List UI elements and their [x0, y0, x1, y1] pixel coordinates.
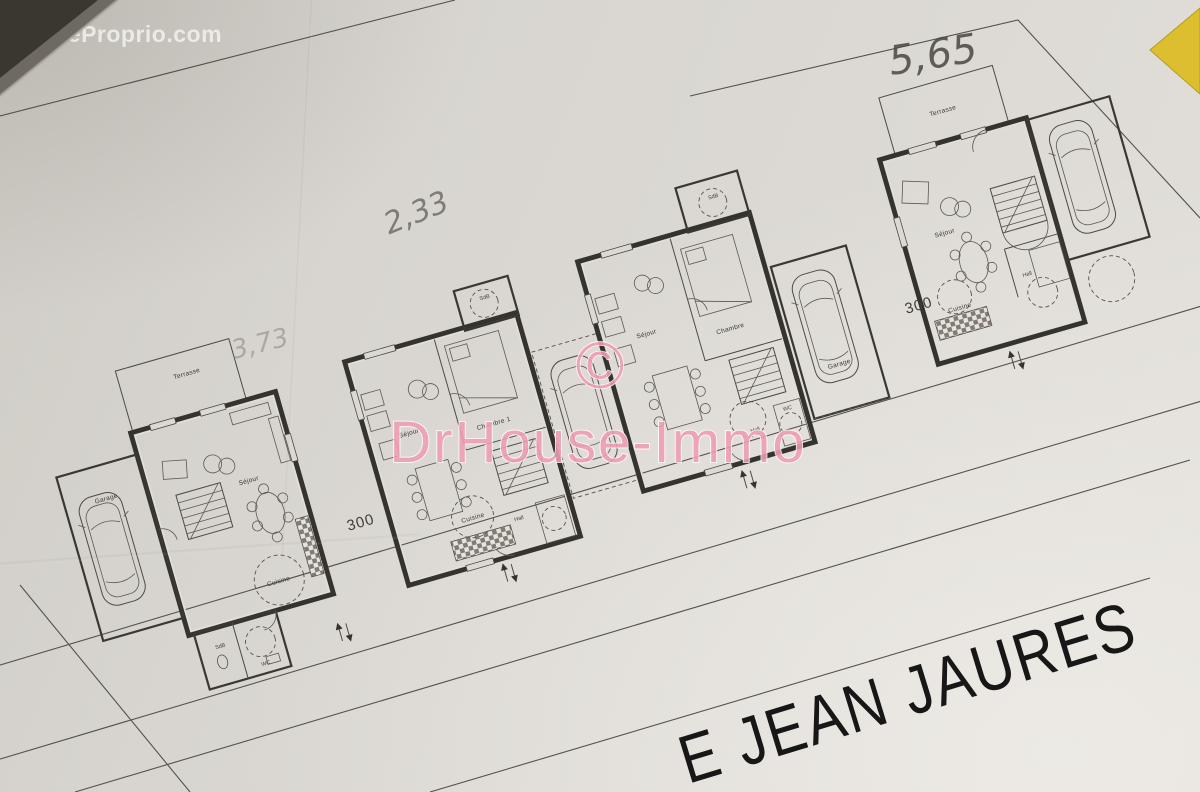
house-2-entry-arrows: [499, 560, 519, 585]
folded-corner-shadow: [0, 0, 118, 96]
house-2-label-hall: Hall: [514, 515, 525, 523]
house-4-furniture: [895, 127, 1140, 351]
house-4-label-hall: Hall: [1022, 271, 1033, 279]
plan-drawing: Terrasse Garage Séjour Cuisine SdB WC: [0, 0, 1200, 792]
house-1-label-sdb: SdB: [215, 642, 227, 651]
agency-watermark-text: DrHouse-Immo: [389, 410, 806, 475]
handwritten-dimension-3-73: 3,73: [228, 323, 291, 366]
house-1-room-labels: Terrasse Garage Séjour Cuisine SdB WC: [67, 359, 312, 700]
house-3-label-sejour: Séjour: [636, 328, 658, 341]
floorplan-photo: Terrasse Garage Séjour Cuisine SdB WC: [0, 0, 1200, 792]
house-3-label-chambre: Chambre: [716, 322, 746, 337]
house-4-label-terrasse: Terrasse: [929, 104, 957, 118]
house-1-plan: Terrasse Garage Séjour Cuisine SdB WC: [33, 328, 357, 714]
house-1-label-terrasse: Terrasse: [173, 367, 201, 381]
house-4-entry-arrows: [1006, 348, 1026, 373]
house-2-label-sdb: SdB: [479, 294, 491, 303]
house-4-stairs-icon: [990, 176, 1047, 233]
handwritten-dimension-2-33: 2,33: [379, 184, 454, 241]
house-1-entry-arrows: [334, 620, 354, 645]
street-name-label: E JEAN JAURES: [670, 587, 1145, 792]
lot-dimension-left: 300: [345, 511, 377, 535]
house-4-plan: Terrasse Séjour Cuisine Hall: [861, 37, 1176, 393]
house-3-stairs-icon: [729, 348, 786, 405]
house-3-car-icon: [785, 265, 866, 387]
handwritten-dimension-5-65: 5,65: [885, 25, 980, 84]
house-1-label-wc: WC: [261, 660, 271, 668]
house-4-label-sejour: Séjour: [934, 227, 956, 240]
house-3-label-sdb: SdB: [708, 193, 720, 202]
house-1-label-cuisine: Cuisine: [266, 575, 291, 588]
house-1-car-icon: [72, 488, 153, 610]
house-1-label-sejour: Séjour: [238, 475, 260, 488]
house-1-stairs-icon: [176, 483, 233, 540]
yellow-corner-wedge: [1150, 8, 1200, 94]
house-2-label-cuisine: Cuisine: [461, 512, 486, 525]
agency-watermark-copyright-icon: ©: [576, 328, 625, 402]
lot-dimension-right: 300: [903, 294, 935, 318]
